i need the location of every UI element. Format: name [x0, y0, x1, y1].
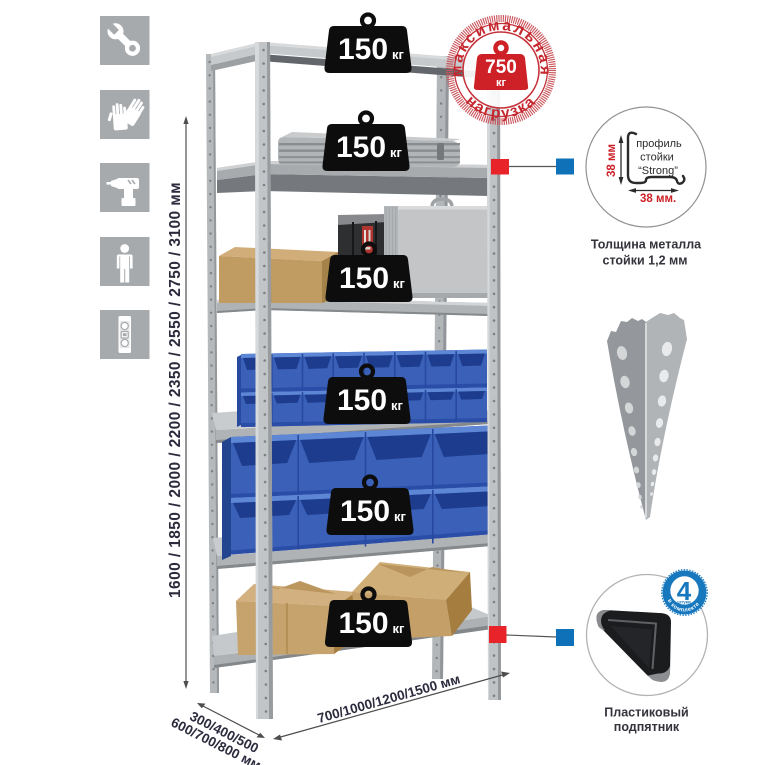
svg-text:кг: кг — [391, 398, 404, 413]
svg-text:150: 150 — [339, 262, 389, 295]
svg-text:Пластиковый: Пластиковый — [604, 706, 688, 720]
svg-text:150: 150 — [336, 131, 386, 164]
svg-text:150: 150 — [338, 607, 388, 640]
svg-text:кг: кг — [392, 47, 405, 62]
svg-text:“Strong”: “Strong” — [638, 165, 678, 177]
svg-text:подпятник: подпятник — [614, 720, 680, 734]
svg-text:профиль: профиль — [636, 138, 682, 150]
svg-text:150: 150 — [340, 495, 390, 528]
svg-text:38 мм: 38 мм — [606, 144, 618, 177]
svg-text:150: 150 — [337, 384, 387, 417]
svg-text:штуки: штуки — [677, 600, 691, 605]
svg-text:кг: кг — [496, 77, 507, 89]
svg-text:кг: кг — [394, 509, 407, 524]
svg-text:150: 150 — [338, 33, 388, 66]
svg-text:Толщина металла: Толщина металла — [591, 238, 702, 252]
svg-text:стойки 1,2 мм: стойки 1,2 мм — [603, 254, 688, 268]
svg-text:кг: кг — [393, 621, 406, 636]
svg-text:750: 750 — [485, 57, 517, 78]
svg-text:кг: кг — [393, 276, 406, 291]
svg-text:кг: кг — [390, 145, 403, 160]
svg-text:1600 / 1850 / 2000 / 2200 / 23: 1600 / 1850 / 2000 / 2200 / 2350 / 2550 … — [167, 182, 184, 598]
svg-text:38 мм.: 38 мм. — [640, 193, 676, 205]
svg-text:стойки: стойки — [640, 152, 674, 164]
